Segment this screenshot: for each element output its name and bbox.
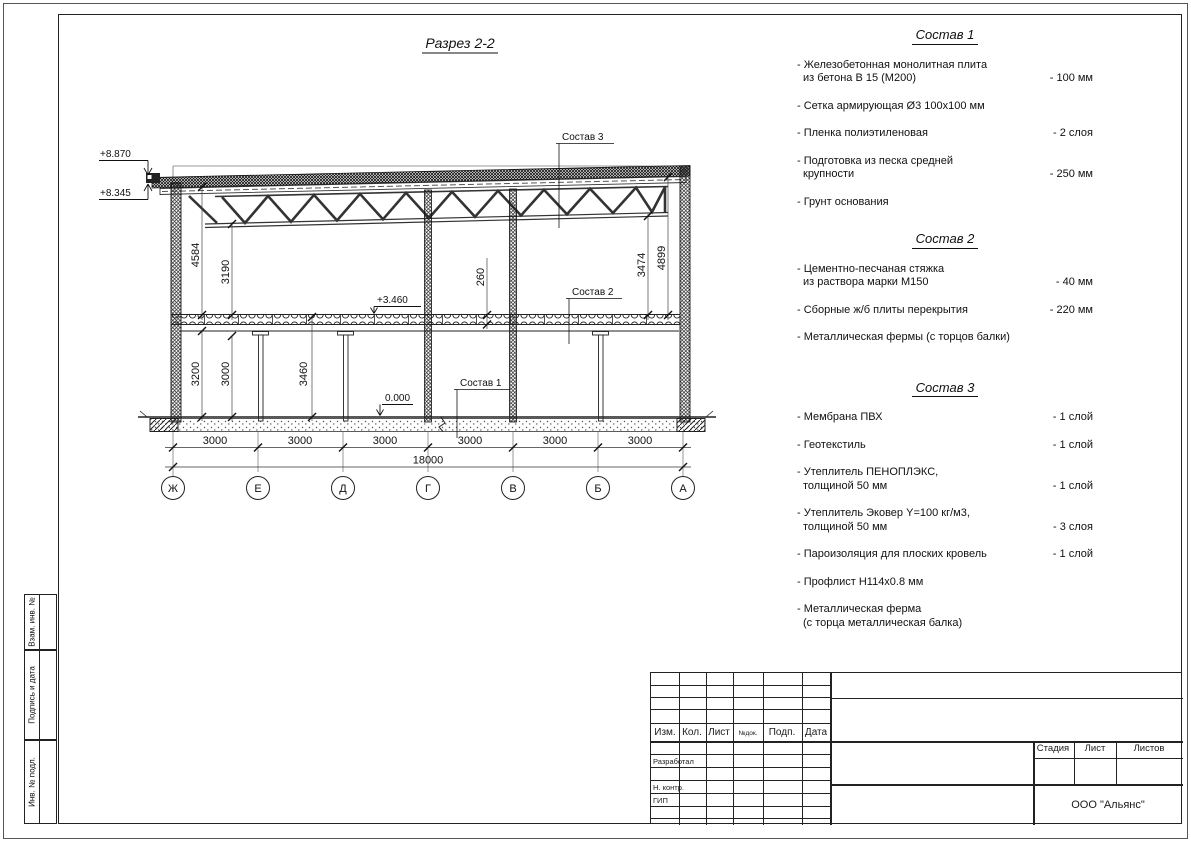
svg-text:Д: Д <box>339 483 347 495</box>
svg-text:Разрез 2-2: Разрез 2-2 <box>425 35 495 51</box>
list-item: - Металлическая фермы (с торцов балки) <box>797 331 1093 345</box>
list-item: - Металлическая ферма(с торца металличес… <box>797 603 1093 630</box>
svg-text:3000: 3000 <box>220 362 232 386</box>
svg-text:Г: Г <box>425 483 431 495</box>
tb-company: ООО "Альянс" <box>1033 784 1183 825</box>
svg-text:Состав 1: Состав 1 <box>460 378 502 389</box>
foundation-right <box>677 419 705 432</box>
list-item: - Цементно-песчаная стяжкаиз раствора ма… <box>797 263 1093 290</box>
tb-row-razrabotal: Разработал <box>653 757 694 766</box>
list-item: - Пароизоляция для плоских кровель - 1 с… <box>797 548 1093 562</box>
tb-col-podp: Подп. <box>769 727 796 738</box>
drawing-sheet: { "drawing": { "title": "Разрез 2-2", "e… <box>0 0 1191 842</box>
list-item: - Утеплитель Эковер Y=100 кг/м3,толщиной… <box>797 507 1093 534</box>
svg-text:260: 260 <box>475 268 487 286</box>
svg-text:18000: 18000 <box>413 455 444 467</box>
list-item: - Железобетонная монолитная плитаиз бето… <box>797 59 1093 86</box>
stamp-vzam-inv: Взам. инв. № <box>24 594 57 650</box>
svg-text:Состав 3: Состав 3 <box>562 132 604 143</box>
section-drawing: Разрез 2-2 <box>90 20 750 520</box>
stamp-label: Подпись и дата <box>28 666 37 724</box>
tb-stage-listov: Листов <box>1134 743 1165 754</box>
stamp-inv-podl: Инв. № подл. <box>24 740 57 824</box>
svg-text:В: В <box>509 483 516 495</box>
list-item: - Мембрана ПВХ - 1 слой <box>797 411 1093 425</box>
list-item: - Подготовка из песка среднейкрупности -… <box>797 155 1093 182</box>
column-g <box>425 190 432 422</box>
list-item: - Пленка полиэтиленовая - 2 слоя <box>797 127 1093 141</box>
stamp-label: Инв. № подл. <box>28 757 37 807</box>
svg-text:+8.345: +8.345 <box>100 188 131 199</box>
list-item: - Сетка армирующая Ø3 100х100 мм <box>797 100 1093 114</box>
column-v <box>510 189 517 422</box>
roof-assembly <box>146 166 690 195</box>
svg-text:Б: Б <box>594 483 601 495</box>
tb-col-list: Лист <box>708 727 730 738</box>
svg-text:3460: 3460 <box>298 362 310 386</box>
list-item: - Геотекстиль - 1 слой <box>797 439 1093 453</box>
tb-row-nkontr: Н. контр. <box>653 783 684 792</box>
tb-col-ndok: №док. <box>738 730 757 737</box>
tb-col-data: Дата <box>805 727 827 738</box>
composition-2-heading: Состав 2 <box>797 232 1093 249</box>
list-item: - Профлист Н114х0.8 мм <box>797 576 1093 590</box>
svg-text:3200: 3200 <box>190 362 202 386</box>
drawing-title: Разрез 2-2 <box>422 35 498 53</box>
grid-bubbles: Ж Е Д Г В Б А <box>162 477 695 500</box>
composition-lists: Состав 1 - Железобетонная монолитная пли… <box>797 28 1093 644</box>
svg-text:3000: 3000 <box>373 435 397 447</box>
stamp-label: Взам. инв. № <box>28 597 37 647</box>
list-item: - Утеплитель ПЕНОПЛЭКС,толщиной 50 мм - … <box>797 466 1093 493</box>
svg-text:Состав 2: Состав 2 <box>572 287 614 298</box>
composition-1-heading: Состав 1 <box>797 28 1093 45</box>
tb-row-gip: ГИП <box>653 796 668 805</box>
foundation-left <box>150 419 178 432</box>
tb-stage: Стадия <box>1037 743 1069 754</box>
tb-stage-list: Лист <box>1085 743 1106 754</box>
list-item: - Сборные ж/б плиты перекрытия - 220 мм <box>797 304 1093 318</box>
svg-text:3474: 3474 <box>636 253 648 277</box>
svg-text:Е: Е <box>254 483 261 495</box>
svg-text:3000: 3000 <box>288 435 312 447</box>
svg-text:3000: 3000 <box>628 435 652 447</box>
svg-text:4899: 4899 <box>656 246 668 270</box>
tb-col-kol: Кол. <box>682 727 702 738</box>
svg-text:+8.870: +8.870 <box>100 149 131 160</box>
svg-text:Ж: Ж <box>168 483 178 495</box>
svg-text:3190: 3190 <box>220 260 232 284</box>
svg-text:4584: 4584 <box>190 243 202 267</box>
title-block: Изм. Кол. Лист №док. Подп. Дата Разработ… <box>650 672 1182 824</box>
composition-3-heading: Состав 3 <box>797 381 1093 398</box>
right-wall <box>680 166 690 422</box>
svg-text:А: А <box>679 483 687 495</box>
stamp-podpis-data: Подпись и дата <box>24 650 57 740</box>
tb-col-izm: Изм. <box>654 727 675 738</box>
svg-text:3000: 3000 <box>543 435 567 447</box>
svg-text:+3.460: +3.460 <box>377 295 408 306</box>
left-wall <box>171 183 181 422</box>
svg-text:3000: 3000 <box>458 435 482 447</box>
horizontal-dimensions: 3000 3000 3000 3000 3000 3000 18000 <box>165 432 691 477</box>
list-item: - Грунт основания <box>797 196 1093 210</box>
svg-text:3000: 3000 <box>203 435 227 447</box>
svg-text:0.000: 0.000 <box>385 393 410 404</box>
